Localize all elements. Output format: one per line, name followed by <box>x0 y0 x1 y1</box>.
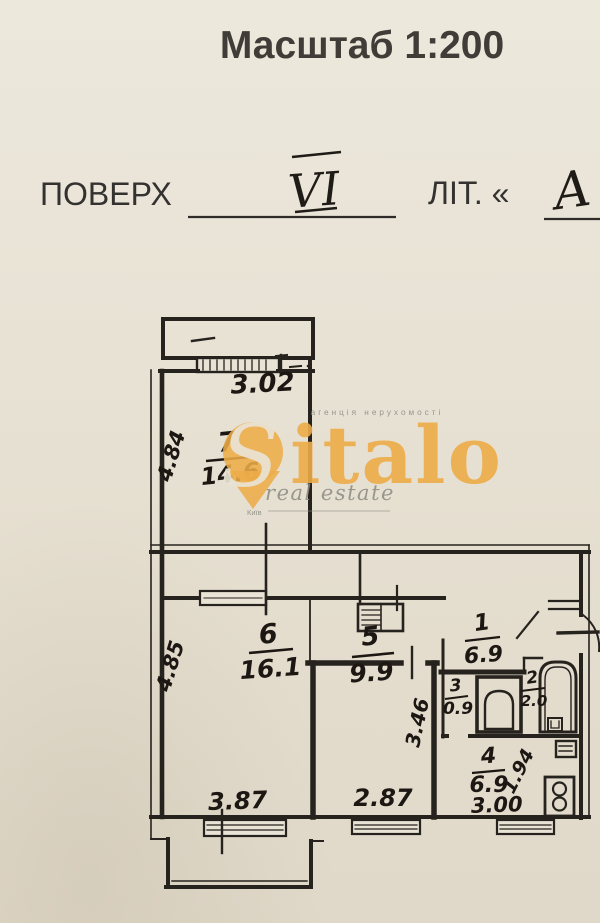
svg-text:6.9: 6.9 <box>463 642 504 670</box>
svg-text:16.1: 16.1 <box>239 652 303 685</box>
svg-text:3: 3 <box>449 676 463 697</box>
svg-text:0.9: 0.9 <box>443 699 473 719</box>
svg-text:5: 5 <box>360 621 381 652</box>
dim-room5-width: 2.87 <box>353 784 413 812</box>
watermark-subtitle: real estate <box>265 481 395 505</box>
scale-title: Масштаб 1:200 <box>220 24 504 67</box>
watermark-city: Київ <box>247 508 262 517</box>
svg-text:9.9: 9.9 <box>348 657 394 689</box>
scanned-floorplan-page: Масштаб 1:200 ПОВЕРХ VI ЛІТ. « А <box>0 0 600 923</box>
svg-text:4: 4 <box>479 744 497 770</box>
dim-balcony-width: 3.02 <box>230 367 296 400</box>
svg-text:6: 6 <box>258 618 279 651</box>
svg-text:2.0: 2.0 <box>521 692 548 710</box>
floor-plan-scan: Масштаб 1:200 ПОВЕРХ VI ЛІТ. « А <box>0 0 600 923</box>
liter-label: ЛІТ. « <box>428 175 509 211</box>
dim-room6-width: 3.87 <box>208 786 268 816</box>
watermark: агенція нерухомості S italo real estate … <box>221 407 503 517</box>
floor-label: ПОВЕРХ <box>40 176 172 212</box>
